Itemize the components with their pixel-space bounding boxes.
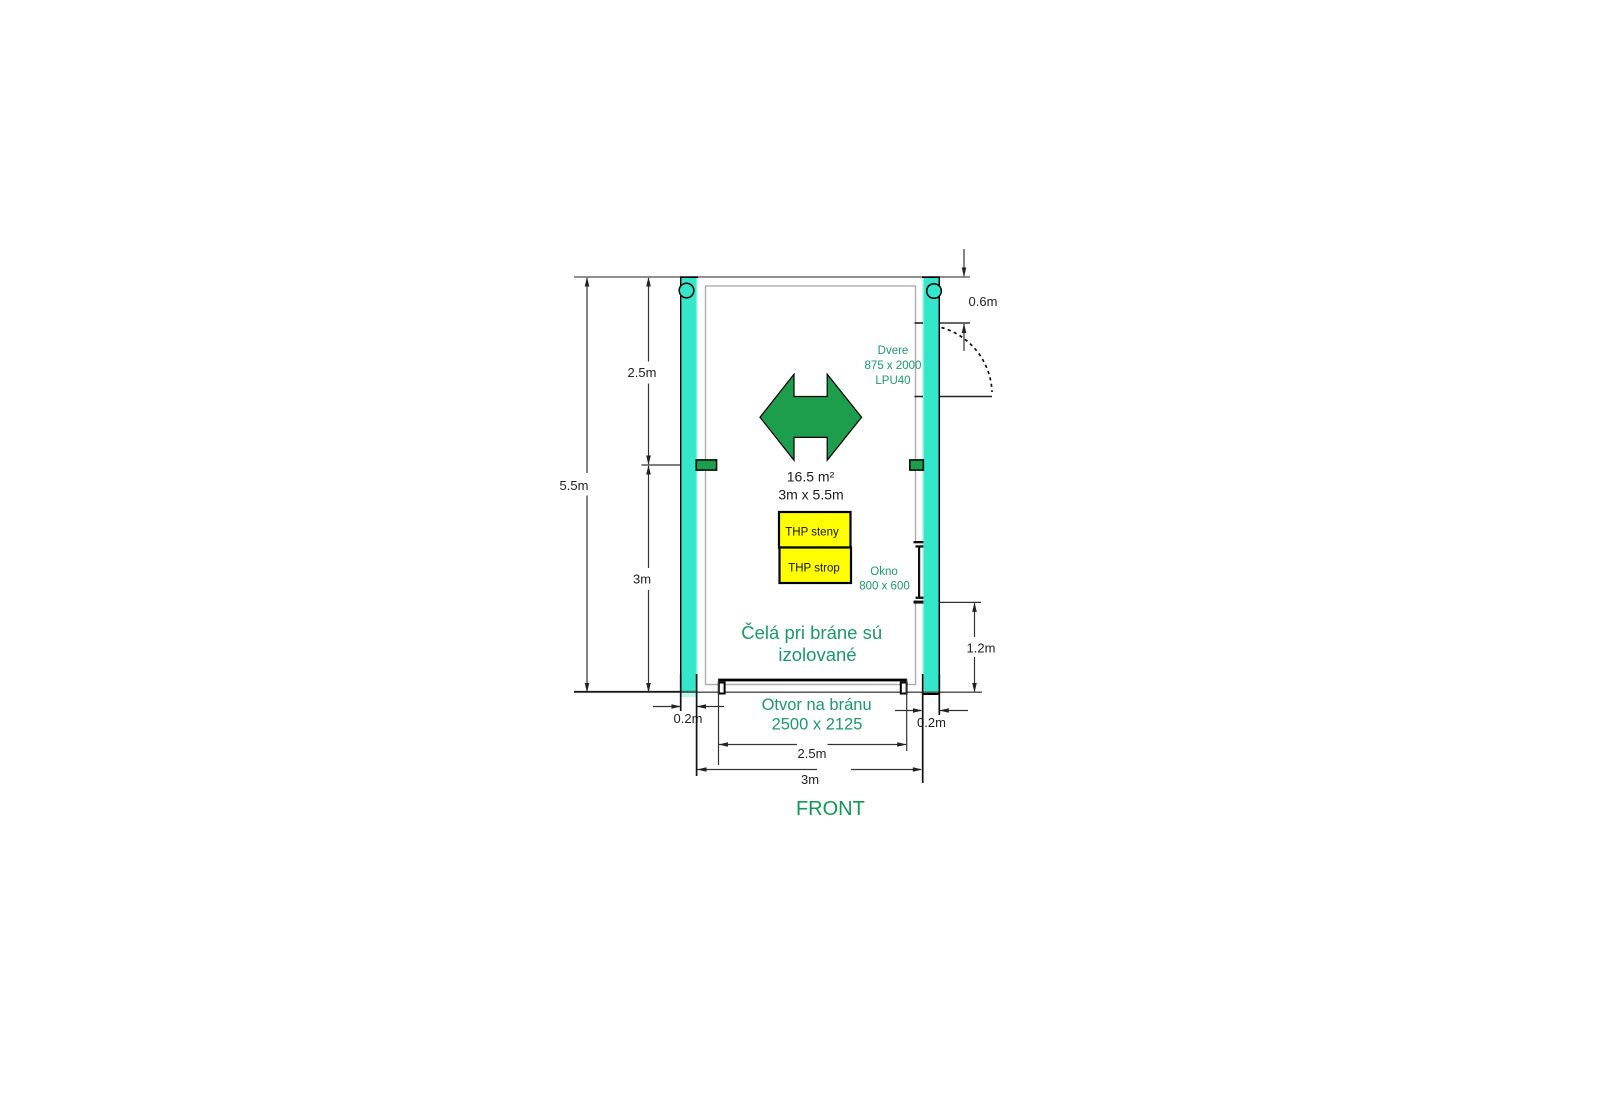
svg-text:Čelá pri bráne sú: Čelá pri bráne sú bbox=[741, 622, 882, 643]
svg-text:0.2m: 0.2m bbox=[674, 711, 703, 726]
svg-text:3m x 5.5m: 3m x 5.5m bbox=[778, 487, 843, 503]
svg-text:izolované: izolované bbox=[778, 644, 856, 665]
svg-text:THP steny: THP steny bbox=[785, 527, 839, 539]
svg-text:5.5m: 5.5m bbox=[560, 478, 589, 493]
svg-text:1.2m: 1.2m bbox=[967, 641, 996, 656]
svg-text:Okno: Okno bbox=[870, 566, 898, 578]
svg-text:Dvere: Dvere bbox=[878, 345, 909, 357]
svg-text:2.5m: 2.5m bbox=[798, 746, 827, 761]
svg-text:3m: 3m bbox=[801, 772, 819, 787]
svg-text:THP strop: THP strop bbox=[788, 563, 840, 575]
svg-text:0.6m: 0.6m bbox=[969, 294, 998, 309]
svg-text:Otvor na bránu: Otvor na bránu bbox=[762, 696, 872, 714]
svg-text:800 x 600: 800 x 600 bbox=[859, 581, 910, 593]
svg-text:875 x 2000: 875 x 2000 bbox=[865, 360, 922, 372]
svg-text:2500 x 2125: 2500 x 2125 bbox=[772, 716, 863, 734]
svg-text:2.5m: 2.5m bbox=[628, 365, 657, 380]
svg-text:16.5 m²: 16.5 m² bbox=[787, 469, 835, 485]
svg-text:LPU40: LPU40 bbox=[875, 375, 910, 387]
svg-text:3m: 3m bbox=[633, 572, 651, 587]
svg-text:0.2m: 0.2m bbox=[917, 715, 946, 730]
svg-text:FRONT: FRONT bbox=[796, 798, 865, 820]
